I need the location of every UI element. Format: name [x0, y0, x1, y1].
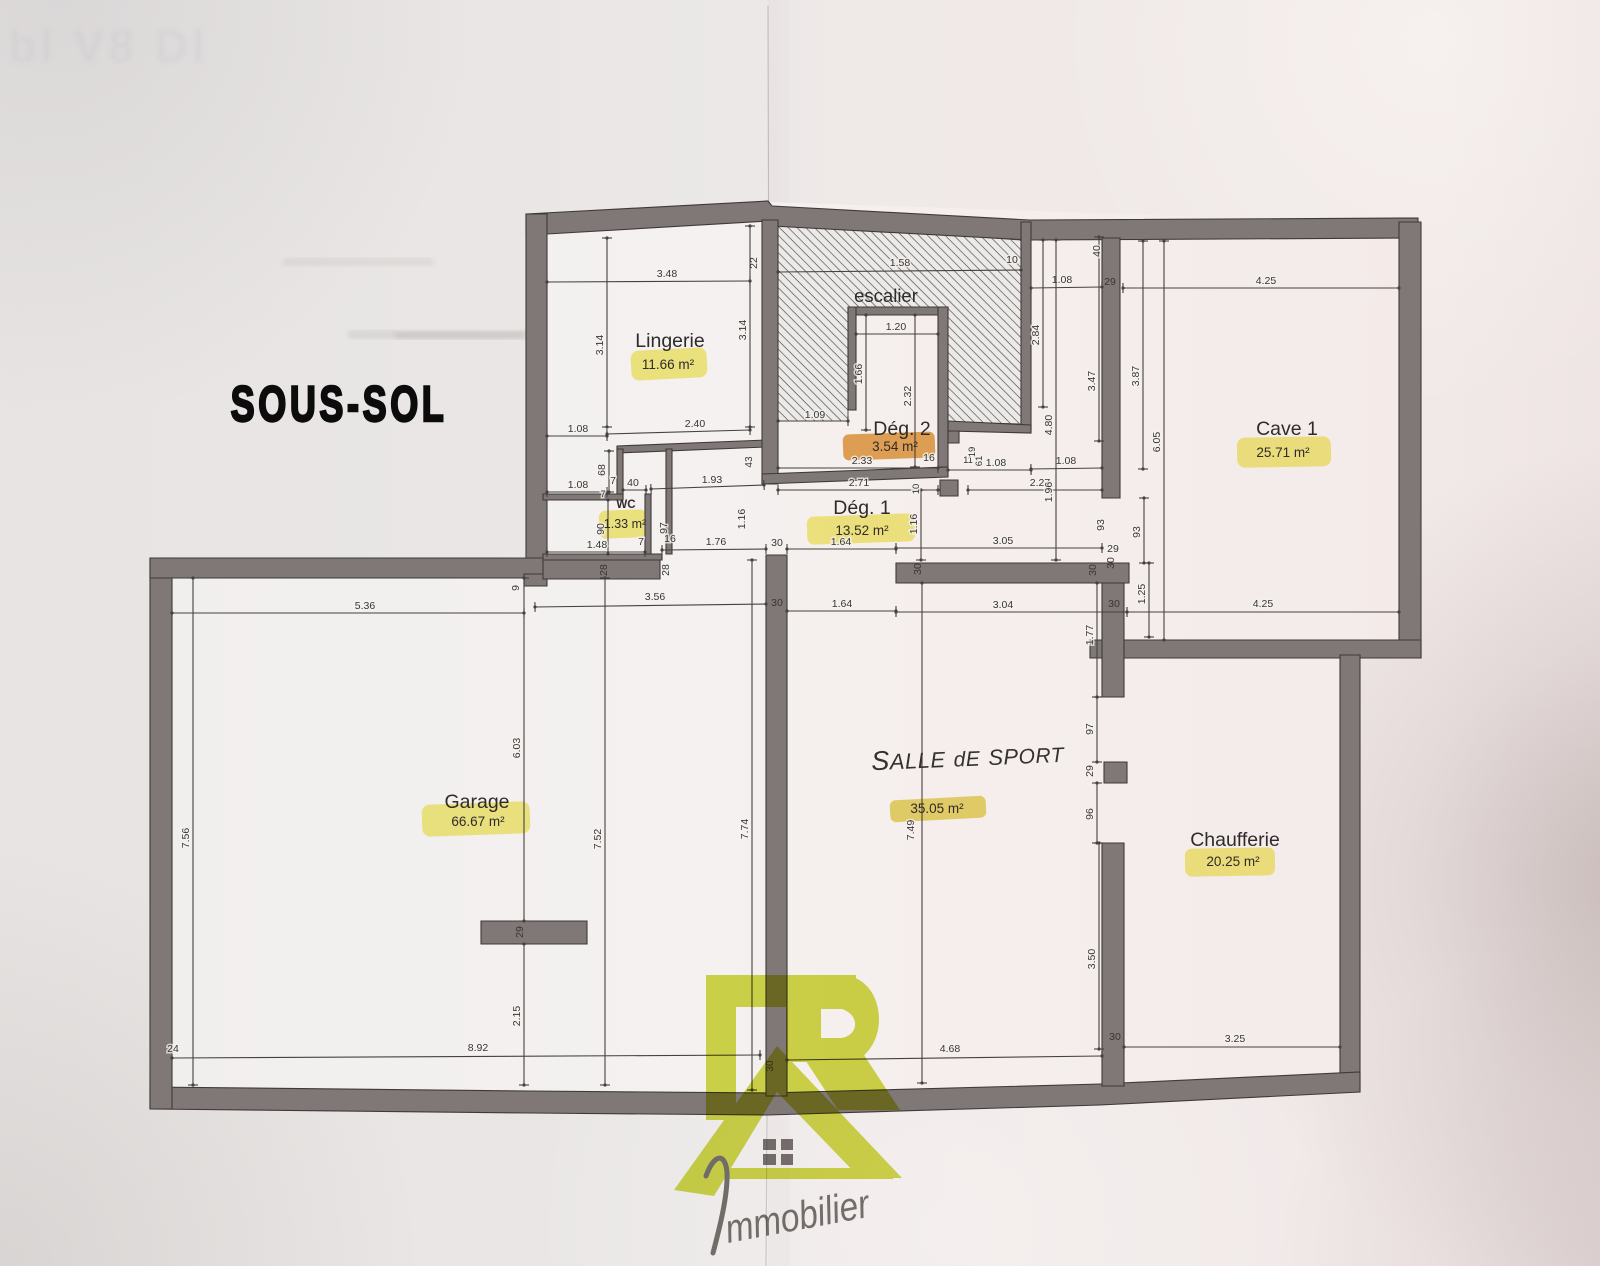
- svg-text:1.09: 1.09: [805, 409, 826, 421]
- svg-text:10: 10: [911, 484, 922, 495]
- svg-text:28: 28: [660, 564, 672, 576]
- svg-text:2.32: 2.32: [902, 386, 914, 407]
- svg-text:7: 7: [610, 475, 616, 487]
- svg-text:1.77: 1.77: [1084, 625, 1096, 646]
- svg-text:35.05 m²: 35.05 m²: [910, 801, 964, 816]
- svg-text:5.36: 5.36: [355, 600, 376, 612]
- svg-text:30: 30: [912, 563, 924, 575]
- svg-text:29: 29: [514, 926, 526, 938]
- svg-text:66.67 m²: 66.67 m²: [451, 814, 505, 829]
- svg-text:3.54 m²: 3.54 m²: [872, 439, 918, 454]
- svg-text:4.80: 4.80: [1043, 415, 1055, 436]
- svg-text:61: 61: [974, 456, 985, 467]
- svg-text:30: 30: [771, 597, 783, 609]
- svg-text:3.56: 3.56: [645, 591, 666, 603]
- svg-text:19: 19: [967, 447, 978, 458]
- svg-text:97: 97: [1084, 723, 1096, 735]
- svg-text:96: 96: [1084, 808, 1096, 820]
- svg-text:4.25: 4.25: [1256, 275, 1277, 287]
- svg-text:1.08: 1.08: [568, 479, 589, 491]
- svg-text:30: 30: [1105, 557, 1117, 569]
- svg-text:1.66: 1.66: [853, 364, 865, 385]
- svg-text:43: 43: [744, 456, 755, 468]
- svg-text:3.04: 3.04: [993, 599, 1014, 611]
- svg-text:30: 30: [1108, 598, 1120, 610]
- svg-text:68: 68: [596, 464, 608, 476]
- svg-text:7: 7: [600, 489, 605, 499]
- svg-text:24: 24: [167, 1043, 179, 1055]
- svg-text:16: 16: [923, 452, 935, 464]
- svg-text:1.64: 1.64: [832, 598, 853, 610]
- svg-text:escalier: escalier: [854, 285, 918, 306]
- svg-text:7.49: 7.49: [905, 820, 917, 841]
- svg-text:WC: WC: [616, 499, 635, 511]
- svg-text:7.74: 7.74: [739, 819, 751, 840]
- svg-text:1.93: 1.93: [702, 474, 723, 486]
- svg-text:Chaufferie: Chaufferie: [1190, 829, 1280, 851]
- svg-text:2.33: 2.33: [852, 455, 873, 467]
- svg-text:4.25: 4.25: [1253, 598, 1274, 610]
- svg-text:40: 40: [1091, 245, 1103, 257]
- svg-text:30: 30: [1109, 1031, 1121, 1043]
- svg-text:1.16: 1.16: [908, 514, 920, 535]
- svg-text:7.52: 7.52: [592, 829, 604, 850]
- svg-text:3.87: 3.87: [1130, 366, 1142, 387]
- svg-text:2.15: 2.15: [511, 1006, 523, 1027]
- svg-text:3.25: 3.25: [1225, 1033, 1246, 1045]
- svg-text:1.16: 1.16: [736, 509, 748, 530]
- svg-text:Dég. 2: Dég. 2: [873, 418, 930, 440]
- svg-text:Dég. 1: Dég. 1: [833, 497, 890, 519]
- svg-text:2.40: 2.40: [685, 418, 706, 430]
- svg-text:1.08: 1.08: [1056, 455, 1077, 467]
- svg-text:Cave 1: Cave 1: [1256, 418, 1318, 440]
- svg-text:7.56: 7.56: [180, 828, 192, 849]
- svg-text:20.25 m²: 20.25 m²: [1206, 854, 1260, 869]
- svg-text:29: 29: [1107, 543, 1119, 555]
- svg-text:9: 9: [510, 585, 522, 591]
- svg-text:30: 30: [1087, 564, 1099, 576]
- svg-text:6.03: 6.03: [511, 738, 523, 759]
- svg-text:8.92: 8.92: [468, 1042, 489, 1054]
- svg-text:Lingerie: Lingerie: [635, 330, 704, 352]
- svg-text:3.47: 3.47: [1086, 371, 1098, 392]
- svg-text:1.08: 1.08: [568, 423, 589, 435]
- svg-text:1.76: 1.76: [706, 536, 727, 548]
- svg-text:7: 7: [638, 536, 644, 548]
- svg-text:1.48: 1.48: [587, 539, 608, 551]
- svg-text:25.71 m²: 25.71 m²: [1256, 445, 1310, 460]
- svg-text:10: 10: [1006, 254, 1018, 266]
- svg-text:1.20: 1.20: [886, 321, 907, 333]
- svg-text:1.25: 1.25: [1136, 584, 1148, 605]
- svg-text:2.84: 2.84: [1030, 325, 1042, 346]
- svg-text:1.33 m²: 1.33 m²: [604, 517, 646, 531]
- svg-text:40: 40: [627, 477, 639, 489]
- svg-text:97: 97: [658, 522, 670, 534]
- svg-text:30: 30: [771, 537, 783, 549]
- svg-text:bl V8 Dl: bl V8 Dl: [8, 20, 209, 72]
- svg-text:29: 29: [1084, 765, 1096, 777]
- svg-text:13.52 m²: 13.52 m²: [835, 523, 889, 538]
- svg-text:29: 29: [1104, 276, 1116, 288]
- svg-text:1.08: 1.08: [986, 457, 1007, 469]
- svg-text:1.58: 1.58: [890, 257, 911, 269]
- svg-text:1.08: 1.08: [1052, 274, 1073, 286]
- svg-text:6.05: 6.05: [1151, 432, 1163, 453]
- svg-text:3.14: 3.14: [737, 320, 749, 341]
- svg-text:93: 93: [1131, 526, 1143, 538]
- svg-text:3.50: 3.50: [1086, 949, 1098, 970]
- svg-text:3.14: 3.14: [594, 335, 606, 356]
- svg-text:4.68: 4.68: [940, 1043, 961, 1055]
- svg-text:28: 28: [598, 564, 610, 576]
- svg-text:2.71: 2.71: [849, 477, 870, 489]
- svg-text:93: 93: [1095, 519, 1107, 531]
- svg-text:1.96: 1.96: [1043, 482, 1055, 503]
- svg-text:SOUS-SOL: SOUS-SOL: [231, 377, 448, 432]
- svg-text:3.05: 3.05: [993, 535, 1014, 547]
- svg-text:3.48: 3.48: [657, 268, 678, 280]
- svg-text:11.66 m²: 11.66 m²: [642, 357, 695, 372]
- svg-text:Garage: Garage: [444, 791, 509, 813]
